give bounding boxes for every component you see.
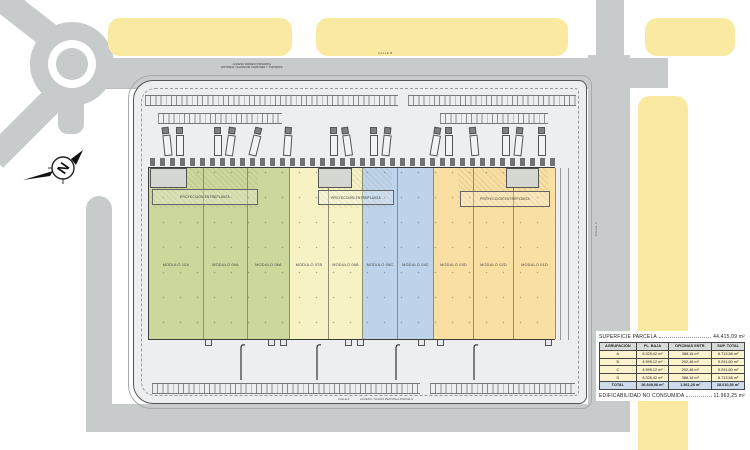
module-label: MODULO 09A <box>204 263 247 267</box>
truck-icon <box>283 127 292 155</box>
wall-box <box>268 339 275 346</box>
truck-cab <box>176 127 183 134</box>
office-block-bc <box>318 168 352 188</box>
street-label-calle-a-bottom: CALLE A <box>338 397 349 401</box>
truck-trailer <box>370 135 378 156</box>
table-row-b: B4.999,12 m²292,48 m²5.291,60 m² <box>600 358 745 366</box>
service-lane-line <box>560 168 561 340</box>
table-cell: 8.325,42 m² <box>636 374 669 382</box>
truck-trailer <box>469 135 479 157</box>
table-cell: 388,16 m² <box>669 350 712 358</box>
roundabout-island <box>56 48 88 80</box>
truck-cab <box>162 127 170 135</box>
edificabilidad-value: 11.963,25 m² <box>714 393 746 399</box>
truck-cab <box>538 127 545 134</box>
truck-cab <box>433 127 441 135</box>
pedestrian-access-label: ACCESO / SALIDA PEATONAL PARCELA <box>360 397 413 401</box>
entreplanta-text: PROYECCION ENTREPLANTA <box>331 196 381 200</box>
table-cell: 8.325,42 m² <box>636 350 669 358</box>
table-header-cell: AGRUPACIÓN <box>600 343 637 351</box>
wall-box <box>357 339 364 346</box>
table-cell: 8.713,58 m² <box>712 374 745 382</box>
table-cell: B <box>600 358 637 366</box>
downpipe-icon <box>313 342 322 385</box>
main-access-label: ACCESO RODADO PRINCIPAL ENTRADA / SALIDA… <box>193 63 311 70</box>
truck-icon <box>330 127 337 155</box>
table-cell: 5.291,60 m² <box>712 358 745 366</box>
module-label: MODULO 05C <box>363 263 397 267</box>
parking-row <box>158 113 282 124</box>
table-header-cell: OFICINAS ENTR. <box>669 343 712 351</box>
superficie-parcela-label: SUPERFICIE PARCELA <box>599 334 657 340</box>
superficie-parcela-line: SUPERFICIE PARCELA 44.415,09 m² <box>599 333 745 340</box>
truck-icon <box>538 127 545 155</box>
edificabilidad-line: EDIFICABILIDAD NO CONSUMIDA 11.963,25 m² <box>599 392 745 399</box>
table-cell: 4.999,12 m² <box>636 358 669 366</box>
downpipe-icon <box>392 342 401 385</box>
entreplanta-label-a: PROYECCION ENTREPLANTA <box>152 189 258 205</box>
truck-cab <box>384 127 392 135</box>
parking-row <box>440 113 548 124</box>
module-label: MODULO 04C <box>398 263 433 267</box>
wall-box <box>280 339 287 346</box>
table-row-c: C4.999,12 m²292,48 m²5.291,60 m² <box>600 366 745 374</box>
road-cross-right-arm <box>630 58 668 88</box>
table-header-cell: PL. BAJA <box>636 343 669 351</box>
truck-icon <box>214 127 221 155</box>
table-header-row: AGRUPACIÓNPL. BAJAOFICINAS ENTR.SUP. TOT… <box>600 343 745 351</box>
module-label: MODULO 06B <box>329 263 362 267</box>
wall-box <box>418 339 425 346</box>
parcel-north-2 <box>316 18 568 56</box>
truck-icon <box>370 127 377 155</box>
truck-icon <box>514 127 524 156</box>
module-label: MODULO 01D <box>514 263 555 267</box>
truck-cab <box>330 127 337 134</box>
truck-cab <box>469 127 477 135</box>
module-label: MODULO 02D <box>474 263 513 267</box>
module-label: MODULO 10A <box>149 263 203 267</box>
truck-trailer <box>330 135 338 156</box>
module-label: MODULO 07B <box>290 263 328 267</box>
table-row-a: A8.325,42 m²388,16 m²8.713,58 m² <box>600 350 745 358</box>
parking-row <box>430 383 575 394</box>
entreplanta-text: PROYECCION ENTREPLANTA <box>480 197 530 201</box>
road-left-vertical <box>86 196 112 432</box>
truck-icon <box>176 127 183 155</box>
entreplanta-label-d: PROYECCION ENTREPLANTA <box>460 191 550 207</box>
truck-trailer <box>214 135 222 156</box>
table-cell: 388,16 m² <box>669 374 712 382</box>
truck-trailer <box>176 135 184 156</box>
module-modulo-04c: MODULO 04C <box>398 168 434 339</box>
areas-summary-panel: SUPERFICIE PARCELA 44.415,09 m² AGRUPACI… <box>596 331 748 401</box>
table-cell: 28.010,36 m² <box>712 381 745 389</box>
truck-icon <box>445 127 452 155</box>
entreplanta-text: PROYECCION ENTREPLANTA <box>180 195 230 199</box>
truck-cab <box>228 127 236 135</box>
truck-cab <box>284 127 291 134</box>
truck-cab <box>370 127 377 134</box>
table-cell: 8.713,58 m² <box>712 350 745 358</box>
truck-cab <box>341 127 349 135</box>
street-label-calle-a-right: CALLE A <box>594 222 598 236</box>
table-cell: TOTAL <box>600 381 637 389</box>
table-cell: 292,48 m² <box>669 366 712 374</box>
parking-row <box>408 95 576 106</box>
table-cell: 5.291,60 m² <box>712 366 745 374</box>
site-plan-canvas: MODULO 10AMODULO 09AMODULO 08AMODULO 07B… <box>0 0 750 450</box>
edificabilidad-label: EDIFICABILIDAD NO CONSUMIDA <box>599 393 684 399</box>
parking-row <box>152 383 420 394</box>
table-row-d: D8.325,42 m²388,16 m²8.713,58 m² <box>600 374 745 382</box>
road-cross-top-arm <box>596 0 624 58</box>
parcel-northeast <box>645 18 735 56</box>
dotted-leader <box>659 333 711 338</box>
downpipe-icon <box>237 342 246 385</box>
table-cell: D <box>600 374 637 382</box>
truck-icon <box>382 127 392 156</box>
downpipe-icon <box>470 342 479 385</box>
street-label-calle-b: CALLE B <box>378 51 392 55</box>
table-cell: C <box>600 366 637 374</box>
entreplanta-label-bc: PROYECCION ENTREPLANTA <box>318 190 394 205</box>
parcel-north-1 <box>108 18 292 56</box>
wall-box <box>437 339 444 346</box>
truck-cab <box>502 127 509 134</box>
truck-cab <box>445 127 452 134</box>
loading-dock-doors <box>150 158 555 166</box>
module-label: MODULO 03D <box>434 263 473 267</box>
truck-trailer <box>502 135 510 156</box>
office-block-a <box>150 168 187 188</box>
office-block-d <box>506 168 539 188</box>
truck-trailer <box>445 135 453 156</box>
truck-cab <box>516 127 524 135</box>
truck-trailer <box>538 135 546 156</box>
superficie-parcela-value: 44.415,09 m² <box>713 334 745 340</box>
table-cell: 4.999,12 m² <box>636 366 669 374</box>
dotted-leader <box>686 392 711 397</box>
table-row-total: TOTAL26.649,08 m²1.361,28 m²28.010,36 m² <box>600 381 745 389</box>
wall-box <box>345 339 352 346</box>
table-header-cell: SUP. TOTAL <box>712 343 745 351</box>
truck-trailer <box>283 135 292 157</box>
wall-box <box>545 339 552 346</box>
service-lane-line <box>568 168 569 340</box>
table-cell: 292,48 m² <box>669 358 712 366</box>
truck-cab <box>214 127 221 134</box>
module-label: MODULO 08A <box>248 263 289 267</box>
areas-table: AGRUPACIÓNPL. BAJAOFICINAS ENTR.SUP. TOT… <box>599 342 745 390</box>
table-cell: A <box>600 350 637 358</box>
table-cell: 26.649,08 m² <box>636 381 669 389</box>
parking-row <box>145 95 398 106</box>
main-access-line2: ENTRADA / SALIDA DE CAMIONES Y TURISMOS <box>193 66 311 69</box>
north-compass-icon: N <box>22 146 86 194</box>
wall-box <box>205 339 212 346</box>
table-cell: 1.361,28 m² <box>669 381 712 389</box>
truck-icon <box>502 127 509 155</box>
